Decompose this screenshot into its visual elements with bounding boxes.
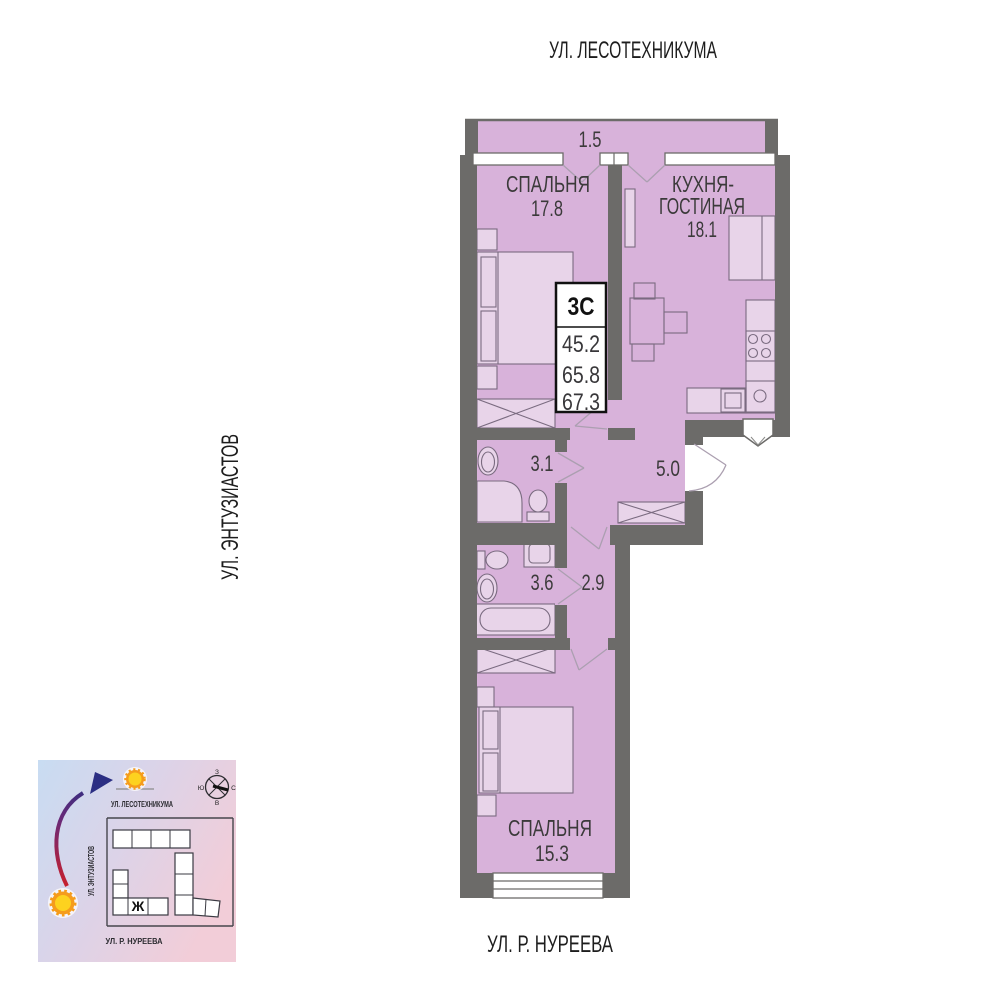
room-area-bedroom-1: 17.8 bbox=[531, 196, 563, 221]
window bbox=[473, 153, 563, 165]
floor-plan-canvas: 3С 45.2 65.8 67.3 1.5 СПАЛЬНЯ 17.8 КУХНЯ… bbox=[0, 0, 1000, 1000]
street-label-bottom: УЛ. Р. НУРЕЕВА bbox=[487, 931, 613, 958]
compass-letter-bottom: В bbox=[215, 800, 219, 807]
area-living: 45.2 bbox=[562, 331, 600, 358]
apartment-type-label: 3С bbox=[568, 293, 595, 321]
entrance-door-icon bbox=[743, 419, 773, 446]
info-box: 3С 45.2 65.8 67.3 bbox=[556, 283, 606, 416]
room-label-bedroom-1: СПАЛЬНЯ bbox=[506, 171, 590, 197]
room-area-hallway: 5.0 bbox=[656, 456, 680, 481]
minimap-street-left: УЛ. ЭНТУЗИАСТОВ bbox=[87, 846, 96, 896]
minimap-street-bottom: УЛ. Р. НУРЕЕВА bbox=[106, 937, 163, 946]
room-area-corridor: 2.9 bbox=[582, 570, 605, 595]
minimap-building-label: Ж bbox=[131, 898, 145, 914]
street-label-top: УЛ. ЛЕСОТЕХНИКУМА bbox=[549, 37, 717, 64]
area-total: 67.3 bbox=[562, 389, 600, 416]
window bbox=[493, 873, 603, 898]
sofa bbox=[729, 216, 775, 280]
room-label-bedroom-2: СПАЛЬНЯ bbox=[508, 815, 592, 841]
street-label-left: УЛ. ЭНТУЗИАСТОВ bbox=[217, 434, 244, 580]
area-main: 65.8 bbox=[562, 362, 600, 389]
toilet bbox=[486, 551, 508, 569]
shower bbox=[477, 481, 522, 522]
room-area-bedroom-2: 15.3 bbox=[535, 841, 569, 866]
compass-letter-left: Ю bbox=[198, 785, 205, 792]
floor-plan-page: 3С 45.2 65.8 67.3 1.5 СПАЛЬНЯ 17.8 КУХНЯ… bbox=[0, 0, 1000, 1000]
room-label-kitchen-line2: ГОСТИНАЯ bbox=[659, 193, 745, 219]
toilet bbox=[529, 490, 547, 512]
room-area-kitchen: 18.1 bbox=[687, 217, 717, 242]
minimap: Ж З Ю С В У bbox=[38, 760, 236, 962]
furniture-hallway bbox=[618, 502, 685, 523]
room-area-bathroom-2: 3.6 bbox=[531, 570, 554, 595]
compass-letter-right: С bbox=[231, 785, 236, 792]
room-area-balcony: 1.5 bbox=[579, 127, 602, 152]
minimap-street-top: УЛ. ЛЕСОТЕХНИКУМА bbox=[111, 800, 173, 809]
sun-icon bbox=[48, 888, 78, 918]
room-area-bathroom-1: 3.1 bbox=[531, 451, 554, 476]
compass-letter-top: З bbox=[215, 769, 219, 776]
window bbox=[665, 153, 775, 165]
